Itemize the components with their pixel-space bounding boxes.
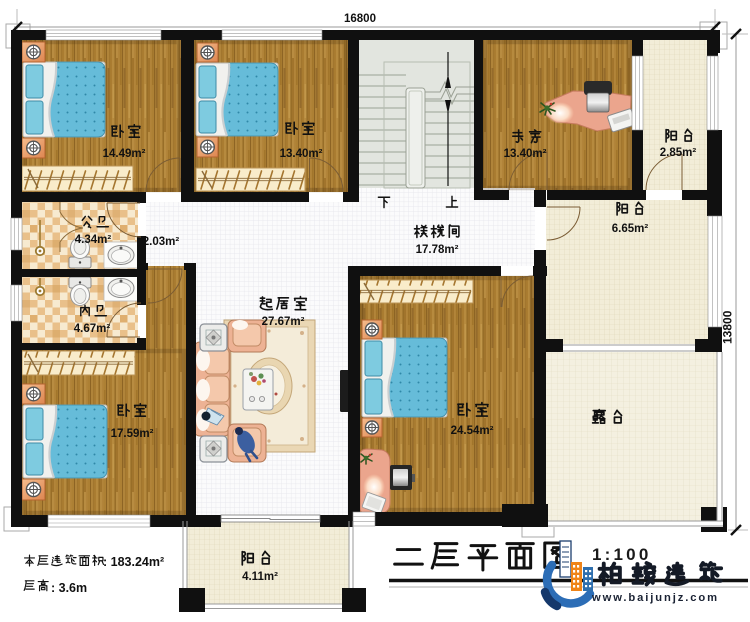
svg-text:6.65m²: 6.65m² [612,223,649,235]
svg-text:24.54m²: 24.54m² [451,425,494,437]
svg-text:13.40m²: 13.40m² [280,148,323,160]
svg-text:27.67m²: 27.67m² [262,316,305,328]
svg-text:2.03m²: 2.03m² [143,236,180,248]
svg-text:17.59m²: 17.59m² [111,428,154,440]
svg-text:16800: 16800 [344,13,376,25]
svg-text:: 183.24m²: : 183.24m² [103,555,164,569]
svg-text:www.baijunjz.com: www.baijunjz.com [591,592,719,604]
svg-text:14.49m²: 14.49m² [103,148,146,160]
svg-text:4.11m²: 4.11m² [242,571,278,583]
svg-text:13800: 13800 [721,310,735,344]
svg-text:1:100: 1:100 [592,545,651,564]
svg-text:: 3.6m: : 3.6m [51,581,87,595]
svg-text:4.34m²: 4.34m² [75,234,112,246]
svg-text:2.85m²: 2.85m² [660,147,697,159]
svg-text:17.78m²: 17.78m² [416,244,459,256]
svg-text:4.67m²: 4.67m² [74,323,111,335]
svg-text:13.40m²: 13.40m² [504,148,547,160]
